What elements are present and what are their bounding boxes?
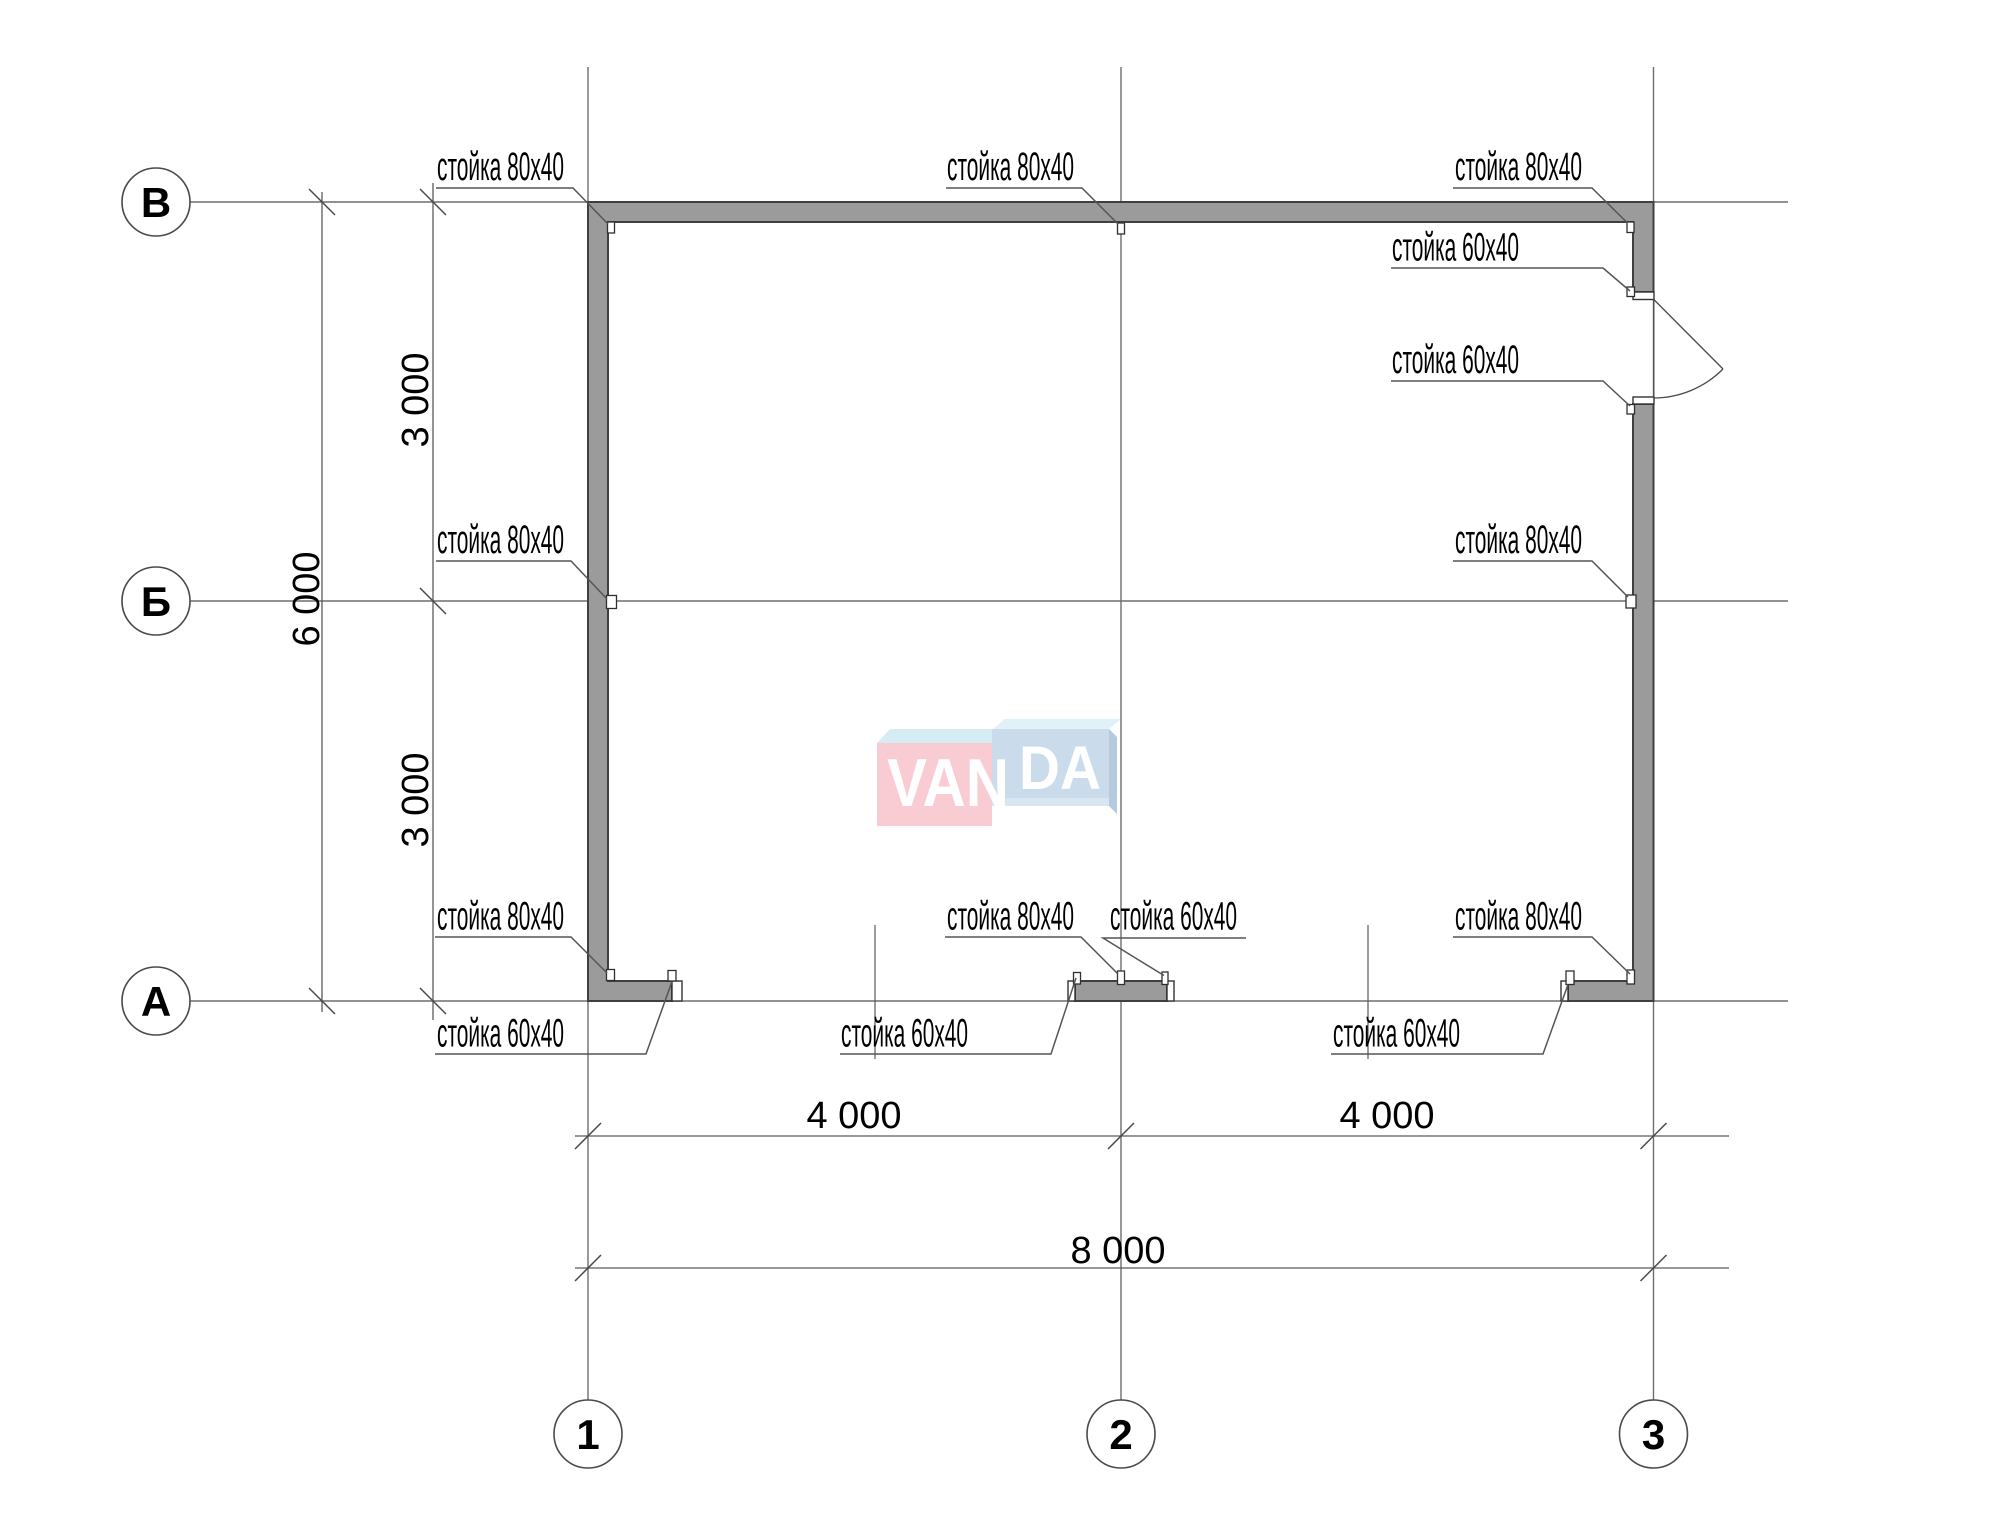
svg-text:стойка 80х40: стойка 80х40 <box>1455 518 1582 562</box>
svg-text:стойка 80х40: стойка 80х40 <box>1455 895 1582 939</box>
svg-text:8 000: 8 000 <box>1070 1230 1165 1272</box>
svg-text:Б: Б <box>141 578 171 625</box>
svg-text:3 000: 3 000 <box>395 752 437 847</box>
svg-text:стойка 60х40: стойка 60х40 <box>1333 1012 1460 1056</box>
svg-text:стойка 80х40: стойка 80х40 <box>437 518 564 562</box>
svg-text:4 000: 4 000 <box>806 1095 901 1137</box>
svg-text:стойка 80х40: стойка 80х40 <box>947 145 1074 189</box>
svg-text:А: А <box>141 978 171 1025</box>
svg-text:стойка 80х40: стойка 80х40 <box>437 895 564 939</box>
svg-text:VAN: VAN <box>887 745 1009 821</box>
svg-text:стойка 60х40: стойка 60х40 <box>1392 226 1519 270</box>
svg-text:3 000: 3 000 <box>395 352 437 447</box>
svg-text:3: 3 <box>1642 1411 1665 1458</box>
svg-text:стойка 80х40: стойка 80х40 <box>437 145 564 189</box>
svg-text:2: 2 <box>1109 1411 1132 1458</box>
svg-text:6 000: 6 000 <box>286 551 328 646</box>
svg-text:стойка 60х40: стойка 60х40 <box>437 1012 564 1056</box>
svg-text:DA: DA <box>1019 734 1101 802</box>
svg-text:стойка 80х40: стойка 80х40 <box>947 895 1074 939</box>
svg-text:стойка 60х40: стойка 60х40 <box>1392 338 1519 382</box>
svg-text:1: 1 <box>576 1411 599 1458</box>
svg-text:4 000: 4 000 <box>1339 1095 1434 1137</box>
svg-text:стойка 60х40: стойка 60х40 <box>841 1012 968 1056</box>
svg-text:стойка 80х40: стойка 80х40 <box>1455 145 1582 189</box>
svg-text:стойка 60х40: стойка 60х40 <box>1110 895 1237 939</box>
svg-text:В: В <box>141 179 171 226</box>
